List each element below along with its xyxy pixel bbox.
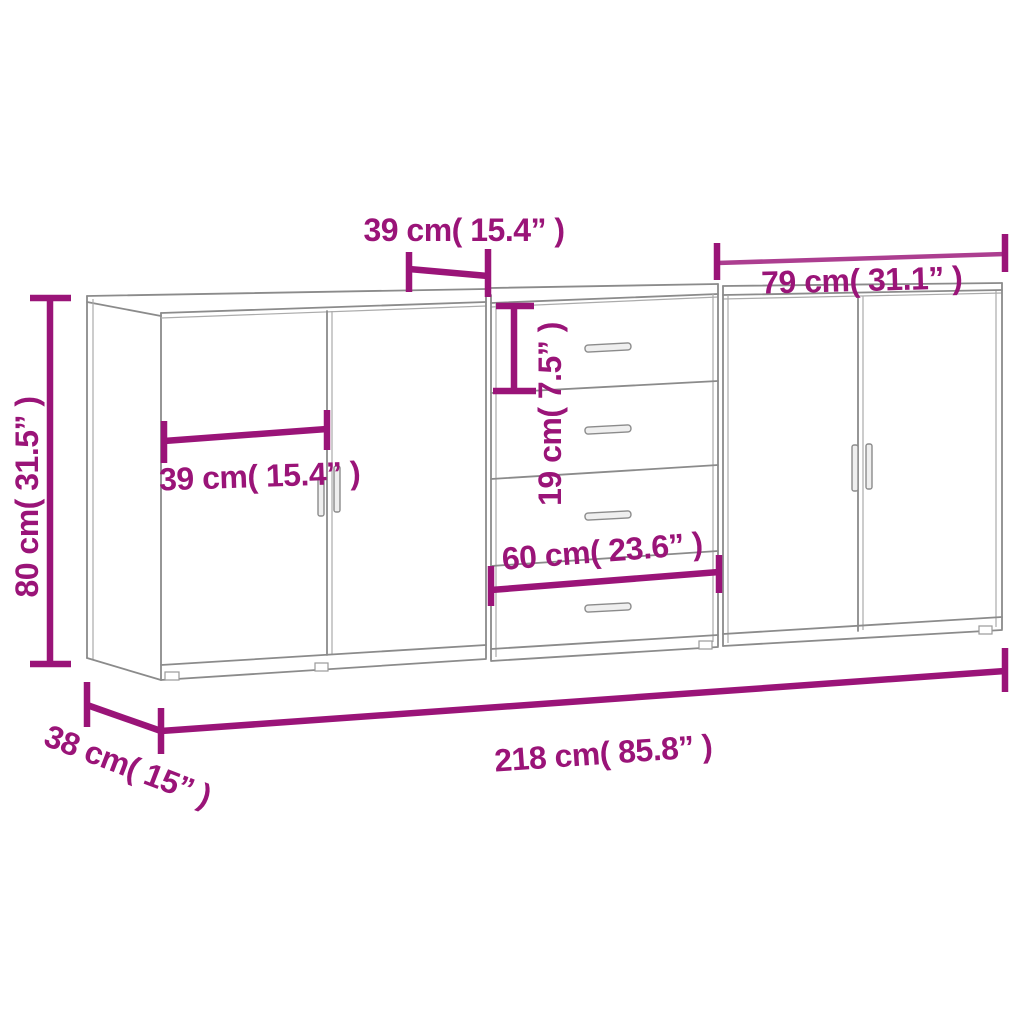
drawer-handle-3	[585, 511, 631, 520]
dim-drawer-height-label: 19 cm( 7.5” )	[532, 322, 568, 506]
cabinet-right-base-bottom-edge	[723, 630, 1002, 646]
cabinet-middle-top-back-edge	[491, 284, 718, 288]
cabinet-middle-drawers	[491, 284, 718, 661]
cabinet-left-top-back-edge	[87, 289, 486, 296]
cabinet-right-foot	[979, 626, 992, 634]
dim-total-width-label: 218 cm( 85.8” )	[493, 727, 713, 778]
dim-depth-line	[87, 705, 161, 731]
dim-door-width-inner-label: 39 cm( 15.4” )	[158, 455, 360, 498]
dim-depth: 38 cm( 15” )	[40, 682, 217, 814]
dim-door-width-top-line	[409, 269, 488, 276]
dim-drawer-unit-width-label: 60 cm( 23.6” )	[500, 525, 703, 577]
cabinet-right-door-handle-left	[852, 445, 858, 491]
dimension-diagram: 39 cm( 15.4” ) 79 cm( 31.1” ) 80 cm( 31.…	[0, 0, 1024, 1024]
drawer-handle-2	[585, 425, 631, 434]
cabinet-middle-drawers-bottom-edge	[491, 635, 718, 649]
dim-height-label: 80 cm( 31.5” )	[9, 396, 45, 597]
drawer-handle-4	[585, 603, 631, 612]
cabinet-middle-foot	[699, 641, 712, 649]
dim-right-unit-width: 79 cm( 31.1” )	[717, 234, 1005, 301]
drawer-divider-2	[491, 465, 718, 479]
cabinet-left-foot-middle	[315, 663, 328, 671]
dim-drawer-unit-width: 60 cm( 23.6” )	[491, 525, 719, 606]
dim-door-width-top: 39 cm( 15.4” )	[363, 212, 564, 297]
dim-door-width-inner-line	[164, 429, 327, 441]
cabinet-left-side-top-edge	[87, 302, 161, 316]
diagram-canvas: 39 cm( 15.4” ) 79 cm( 31.1” ) 80 cm( 31.…	[0, 0, 1024, 1024]
cabinet-middle-base-bottom-edge	[491, 647, 718, 661]
dim-height: 80 cm( 31.5” )	[9, 298, 71, 664]
cabinet-left-foot-left	[165, 672, 179, 680]
drawer-handle-1	[585, 343, 631, 352]
dim-door-width-inner: 39 cm( 15.4” )	[158, 410, 360, 498]
cabinet-right	[723, 283, 1002, 646]
dim-total-width: 218 cm( 85.8” )	[161, 648, 1005, 779]
dim-total-width-line	[161, 671, 1005, 731]
cabinet-right-door-handle-right	[866, 444, 872, 489]
dim-right-unit-width-label: 79 cm( 31.1” )	[761, 259, 963, 300]
dim-door-width-top-label: 39 cm( 15.4” )	[363, 212, 564, 248]
cabinet-left-side-bottom-edge	[87, 658, 161, 680]
